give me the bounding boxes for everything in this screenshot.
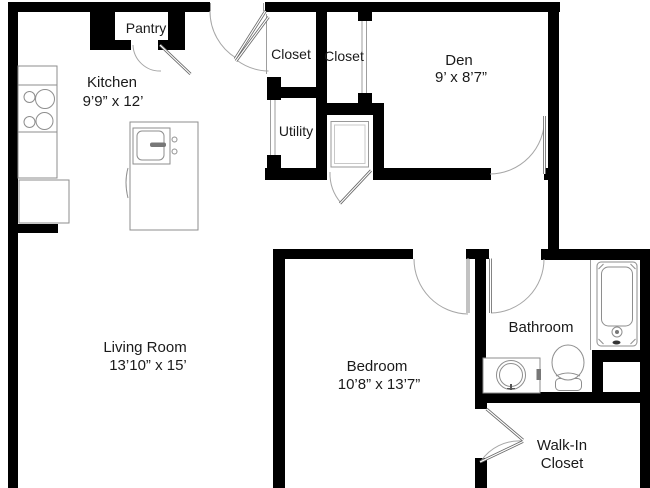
- wall-top-right: [265, 2, 560, 12]
- room-label-den: Den: [445, 52, 473, 70]
- wall-bedroom-west: [273, 249, 285, 488]
- wall-utility-west-top: [267, 77, 281, 100]
- wall-den-closet-jamb-top: [358, 12, 372, 21]
- stove-burner-large-2: [36, 113, 53, 130]
- wall-entry-closet-bottom: [275, 87, 316, 98]
- den-door-arc: [490, 118, 545, 174]
- entry-closet-door-arc: [237, 60, 269, 71]
- wall-closet-divider: [316, 12, 327, 180]
- wall-hall-north-mid: [373, 168, 491, 180]
- vanity-sink-inner: [500, 364, 523, 387]
- wall-right-lower: [640, 249, 650, 488]
- wall-bathroom-south: [475, 392, 650, 403]
- room-label-bedroom: Bedroom: [347, 358, 408, 376]
- wall-pantry-left-stub: [115, 40, 131, 50]
- wall-hall-north-west: [265, 168, 327, 180]
- wall-den-east: [548, 2, 559, 252]
- wall-step: [541, 249, 650, 260]
- bathtub-basin: [602, 267, 633, 326]
- stove-burner-large-1: [36, 90, 55, 109]
- wall-middle-stub: [466, 249, 489, 259]
- utility-fixtures: [331, 122, 369, 168]
- stove-burner-small-1: [24, 92, 35, 103]
- room-label-living-room: Living Room: [103, 339, 186, 357]
- room-label-kitchen: Kitchen: [87, 74, 137, 92]
- bedroom-door-arc: [414, 259, 468, 314]
- wall-left: [8, 2, 18, 488]
- wall-middle-west: [273, 249, 413, 259]
- room-label-pantry: Pantry: [126, 19, 166, 37]
- wall-kitchen-stub: [8, 224, 58, 233]
- vanity-side-item: [537, 369, 542, 380]
- washer-closet-door-arc: [330, 172, 341, 203]
- wall-top-left: [8, 2, 210, 12]
- room-dims-bedroom: 10’8” x 13’7”: [338, 376, 421, 394]
- entry-door-arc: [210, 11, 236, 58]
- pantry-door-arc: [133, 45, 161, 71]
- refrigerator: [19, 180, 69, 223]
- room-dims-living-room: 13’10” x 15’: [109, 357, 187, 375]
- wall-den-closet-jamb-bottom: [358, 93, 372, 103]
- washer-dryer-inner: [335, 125, 366, 164]
- wall-chase-west: [592, 350, 603, 403]
- room-label-entry-closet: Closet: [271, 45, 311, 63]
- sink-knob-2: [172, 149, 177, 154]
- room-label-walk-in-closet: Walk-In Closet: [537, 437, 587, 473]
- wall-walkin-west-top: [475, 403, 487, 409]
- room-label-den-closet: Closet: [324, 47, 364, 65]
- tub-overflow: [613, 341, 621, 345]
- dishwasher-handle: [126, 168, 128, 198]
- wall-hall-north-east-stub: [544, 168, 559, 180]
- sink-faucet: [150, 143, 166, 148]
- floor-plan: Pantry Kitchen 9’9” x 12’ Closet Closet …: [0, 0, 650, 488]
- room-label-utility: Utility: [279, 122, 313, 140]
- stove-burner-small-2: [24, 117, 35, 128]
- toilet-bowl: [552, 345, 584, 380]
- bathroom-door-arc: [491, 259, 544, 313]
- room-dims-kitchen: 9’9” x 12’: [83, 93, 144, 111]
- room-dims-den: 9’ x 8’7”: [435, 69, 487, 87]
- tub-drain: [615, 330, 619, 334]
- room-label-bathroom: Bathroom: [508, 319, 573, 337]
- wall-pantry-left: [90, 12, 115, 50]
- sink-knob-1: [172, 137, 177, 142]
